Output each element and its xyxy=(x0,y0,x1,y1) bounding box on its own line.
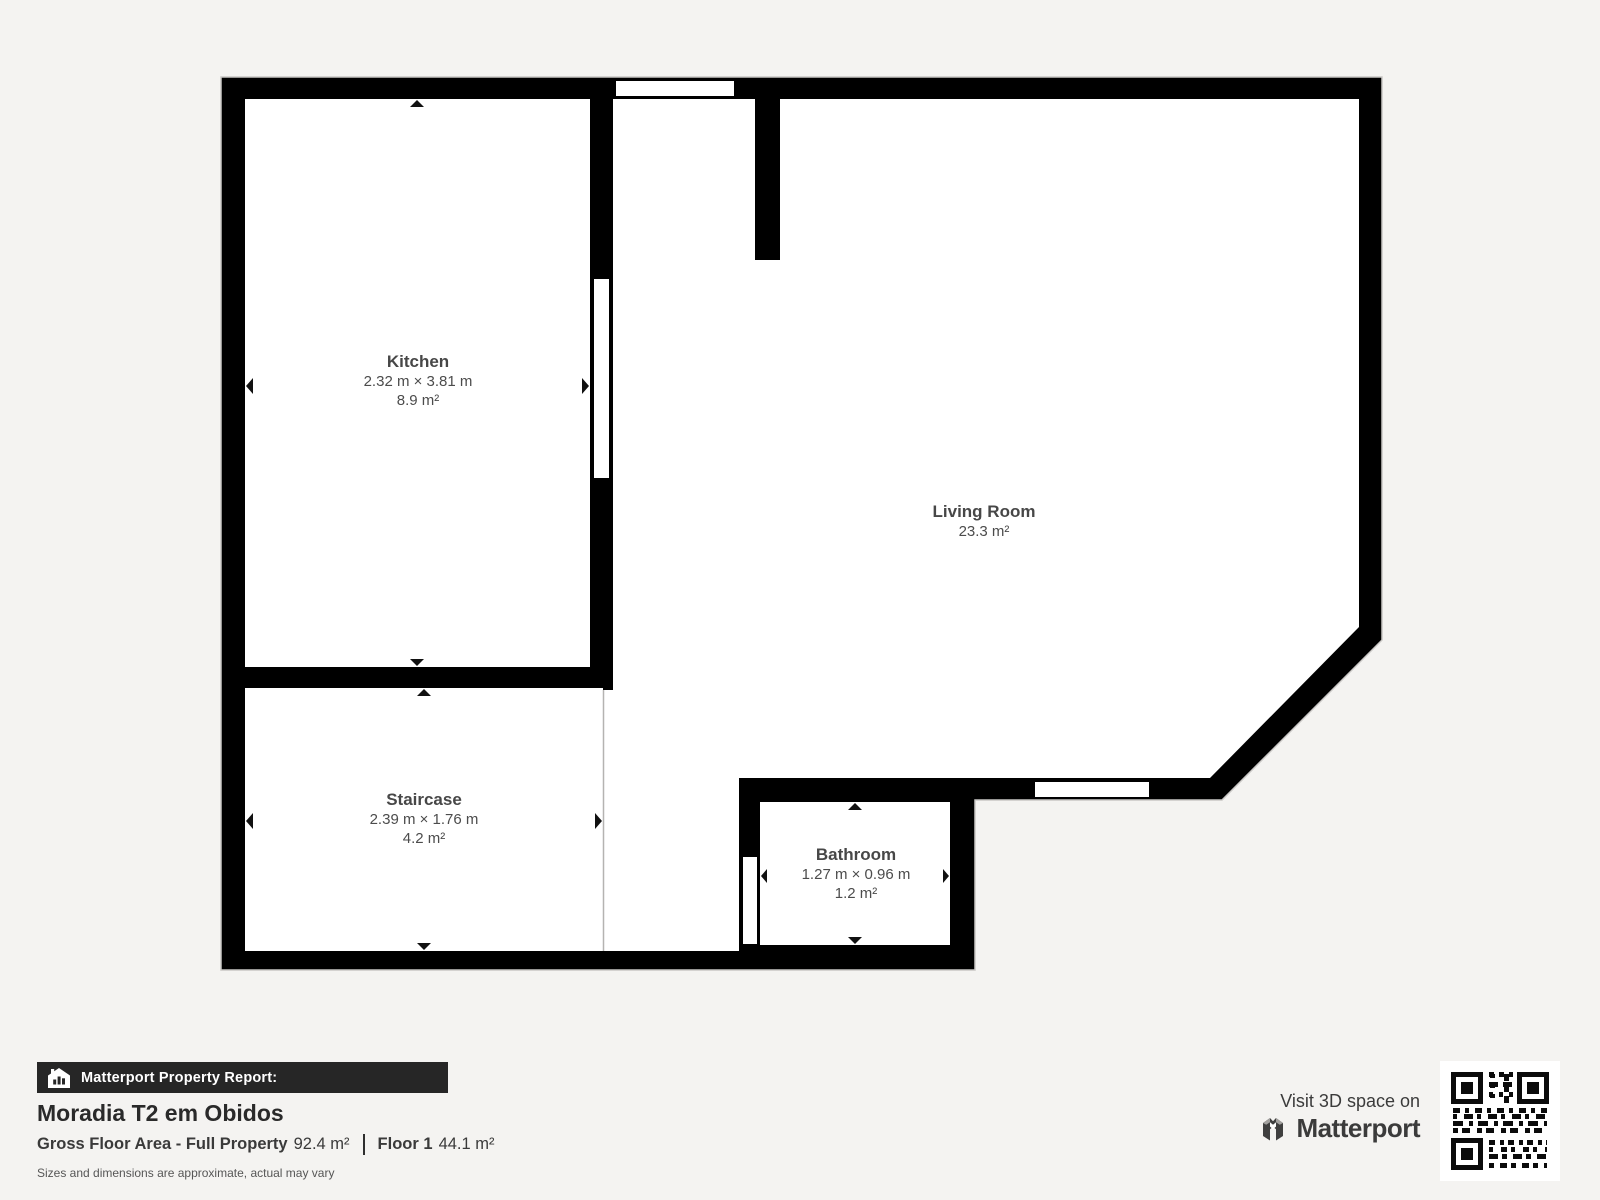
matterport-wordmark: Matterport xyxy=(1296,1113,1420,1144)
bathroom-door-opening xyxy=(743,857,757,944)
window-living-room-wall xyxy=(1035,782,1149,797)
staircase-floor xyxy=(245,688,603,951)
floor-area-stats: Gross Floor Area - Full Property 92.4 m²… xyxy=(37,1134,495,1155)
matterport-m-icon xyxy=(1259,1115,1287,1143)
matterport-logo: Matterport xyxy=(1259,1113,1420,1144)
gross-floor-area-label: Gross Floor Area - Full Property xyxy=(37,1135,288,1154)
gross-floor-area-value: 92.4 m² xyxy=(294,1135,350,1154)
property-report-page: Kitchen 2.32 m × 3.81 m 8.9 m² Living Ro… xyxy=(0,0,1600,1200)
qr-code xyxy=(1440,1061,1560,1181)
window-kitchen-wall xyxy=(594,279,609,478)
floor-label: Floor 1 xyxy=(378,1135,433,1154)
visit-3d-text: Visit 3D space on xyxy=(1280,1091,1420,1112)
floor-value: 44.1 m² xyxy=(439,1135,495,1154)
disclaimer-text: Sizes and dimensions are approximate, ac… xyxy=(37,1166,334,1180)
qr-code-pattern xyxy=(1451,1072,1549,1170)
house-chart-icon xyxy=(48,1068,70,1088)
property-title: Moradia T2 em Obidos xyxy=(37,1100,284,1127)
bathroom-floor xyxy=(760,802,950,945)
report-bar-label: Matterport Property Report: xyxy=(81,1070,277,1086)
living-room-floor xyxy=(604,99,1359,951)
floor-plan xyxy=(0,0,1600,1010)
window-top-wall xyxy=(616,81,734,96)
hallway-wall-stub xyxy=(755,99,780,260)
kitchen-floor xyxy=(245,99,590,667)
stats-divider xyxy=(363,1134,365,1155)
report-header-bar: Matterport Property Report: xyxy=(37,1062,448,1093)
